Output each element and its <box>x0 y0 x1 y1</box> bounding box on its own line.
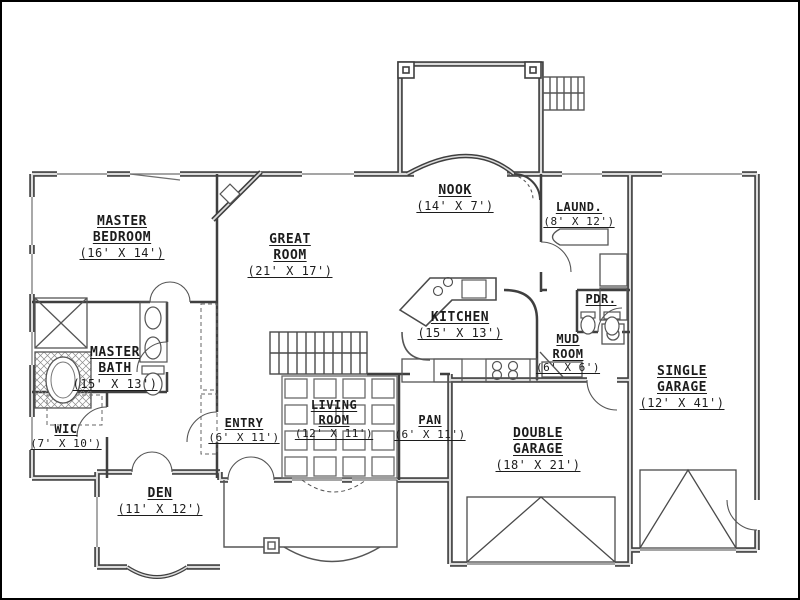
double-garage-door <box>467 497 615 562</box>
room-dims: (11' X 12') <box>118 502 203 517</box>
room-dims: (15' X 13') <box>73 377 158 392</box>
room-name: GARAGE <box>640 380 725 396</box>
room-name: LIVING <box>295 398 373 413</box>
washer <box>600 254 627 286</box>
room-label-double-garage: DOUBLE GARAGE (18' X 21') <box>496 426 581 472</box>
room-label-living-room: LIVING ROOM (12' X 11') <box>295 398 373 441</box>
room-dims: (6' X 11') <box>394 428 465 441</box>
room-name: NOOK <box>416 183 493 199</box>
room-name: ROOM <box>295 413 373 428</box>
deck-stairs <box>543 77 584 110</box>
room-name: PDR. <box>586 292 617 307</box>
room-label-kitchen: KITCHEN (15' X 13') <box>418 310 503 340</box>
room-dims: (8' X 12') <box>543 215 614 228</box>
room-name: BATH <box>73 361 158 377</box>
porch-post <box>264 538 279 553</box>
single-garage-door <box>640 470 736 548</box>
interior-stairs <box>270 332 367 374</box>
room-dims: (14' X 7') <box>416 199 493 214</box>
room-name: BEDROOM <box>80 230 165 246</box>
room-label-den: DEN (11' X 12') <box>118 486 203 516</box>
room-name: DOUBLE <box>496 426 581 442</box>
room-label-single-garage: SINGLE GARAGE (12' X 41') <box>640 364 725 410</box>
room-name: ROOM <box>248 248 333 264</box>
room-name: LAUND. <box>543 200 614 215</box>
room-label-laundry: LAUND. (8' X 12') <box>543 200 614 228</box>
room-name: PAN <box>394 413 465 428</box>
room-dims: (15' X 13') <box>418 326 503 341</box>
garage-door-indicators <box>467 470 736 564</box>
room-label-pantry: PAN (6' X 11') <box>394 413 465 441</box>
porch <box>224 480 397 562</box>
room-name: ENTRY <box>208 416 279 431</box>
room-label-master-bath: MASTER BATH (15' X 13') <box>73 345 158 391</box>
room-name: GREAT <box>248 232 333 248</box>
ironing-board <box>553 229 609 245</box>
corner-fireplace <box>213 172 261 220</box>
room-name: GARAGE <box>496 442 581 458</box>
room-dims: (18' X 21') <box>496 458 581 473</box>
room-dims: (7' X 10') <box>30 437 101 450</box>
room-dims: (21' X 17') <box>248 264 333 279</box>
room-label-powder: PDR. <box>586 292 617 307</box>
floor-plan-canvas: MASTER BEDROOM (16' X 14') GREAT ROOM (2… <box>0 0 800 600</box>
room-dims: (16' X 14') <box>80 246 165 261</box>
door-swing-arcs <box>77 174 757 530</box>
toilet-bowl <box>605 317 619 335</box>
porch-step-arc <box>284 547 380 562</box>
room-name: ROOM <box>536 347 600 362</box>
room-label-nook: NOOK (14' X 7') <box>416 183 493 213</box>
room-dims: (6' X 11') <box>208 431 279 444</box>
room-label-entry: ENTRY (6' X 11') <box>208 416 279 444</box>
room-name: DEN <box>118 486 203 502</box>
room-dims: (12' X 11') <box>295 427 373 440</box>
room-dims: (12' X 41') <box>640 396 725 411</box>
room-name: WIC <box>30 422 101 437</box>
room-label-great-room: GREAT ROOM (21' X 17') <box>248 232 333 278</box>
room-name: MUD <box>536 332 600 347</box>
shower <box>35 298 87 348</box>
room-name: KITCHEN <box>418 310 503 326</box>
room-name: SINGLE <box>640 364 725 380</box>
room-name: MASTER <box>73 345 158 361</box>
room-label-mud-room: MUD ROOM (6' X 6') <box>536 332 600 375</box>
room-dims: (6' X 6') <box>536 361 600 374</box>
room-label-master-bedroom: MASTER BEDROOM (16' X 14') <box>80 214 165 260</box>
room-name: MASTER <box>80 214 165 230</box>
room-label-wic: WIC (7' X 10') <box>30 422 101 450</box>
